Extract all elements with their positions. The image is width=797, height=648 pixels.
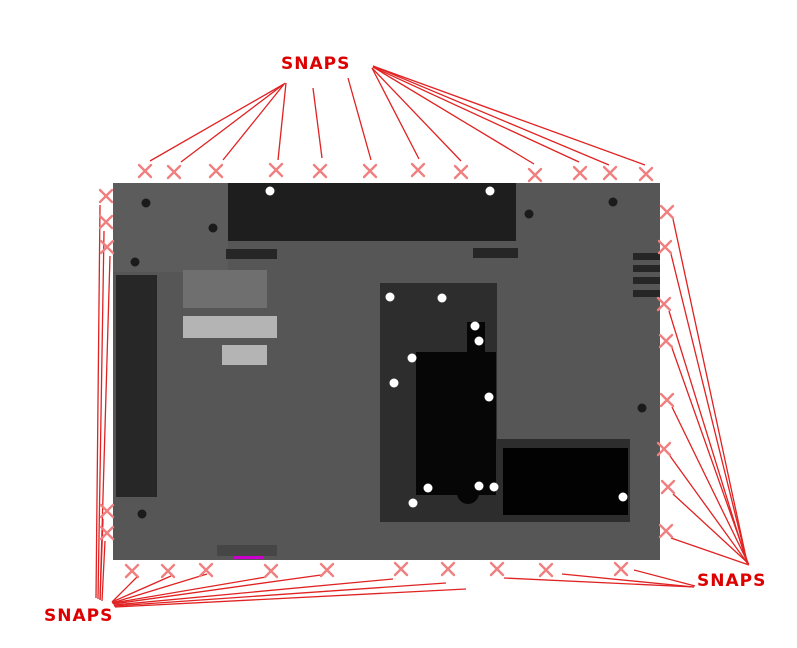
leader-line (673, 494, 749, 564)
keyboard-latch-left (226, 249, 277, 259)
leader-line (504, 578, 694, 587)
snap-x-marker-top (412, 164, 424, 176)
leader-line (671, 538, 749, 565)
leader-line (373, 67, 579, 162)
leader-line (113, 577, 266, 603)
snap-x-marker-bottom (540, 564, 552, 576)
keyboard-latch-right (473, 248, 518, 258)
leader-line (112, 574, 207, 603)
ram-module-2 (183, 316, 277, 338)
snap-x-marker-top (640, 168, 652, 180)
leader-line (115, 589, 466, 607)
snap-x-marker-bottom (265, 565, 277, 577)
snaps-label-top: SNAPS (281, 56, 350, 73)
leader-line (669, 311, 747, 563)
snap-x-marker-left (101, 241, 113, 253)
leader-line (223, 83, 285, 160)
leader-line (634, 570, 695, 586)
snap-x-marker-left (101, 505, 113, 517)
snap-x-marker-bottom (200, 564, 212, 576)
snap-x-marker-top (168, 166, 180, 178)
vent-slat-1 (633, 253, 660, 260)
snap-x-marker-top (529, 169, 541, 181)
leader-line (278, 83, 286, 160)
snap-x-marker-top (314, 165, 326, 177)
leader-line (181, 84, 284, 162)
snap-x-marker-right (661, 394, 673, 406)
leader-line (673, 219, 747, 562)
leader-line (96, 205, 100, 598)
snap-x-marker-top (574, 167, 586, 179)
snap-x-marker-bottom (126, 565, 138, 577)
snap-x-marker-right (660, 525, 672, 537)
snap-x-marker-top (270, 164, 282, 176)
leader-line (671, 254, 747, 562)
leader-line (100, 256, 110, 600)
snap-x-marker-right (661, 206, 673, 218)
snap-x-marker-left (101, 527, 113, 539)
leader-line (114, 583, 446, 606)
battery-bay (116, 275, 157, 497)
laptop-base (113, 183, 660, 560)
leader-line (373, 66, 609, 165)
leader-line (102, 541, 105, 601)
magenta-highlight-strip (234, 556, 263, 559)
leader-line (348, 78, 371, 160)
front-edge-latch (217, 545, 277, 556)
snap-x-marker-top (364, 165, 376, 177)
leader-line (313, 88, 322, 158)
snaps-label-bottom-right: SNAPS (697, 573, 766, 590)
snap-x-marker-top (210, 165, 222, 177)
leader-line (100, 519, 103, 600)
vent-slat-3 (633, 277, 660, 284)
keyboard-area (228, 183, 516, 241)
snap-x-marker-top (139, 165, 151, 177)
drive-bay (503, 448, 628, 515)
leader-line (150, 84, 284, 161)
snap-x-marker-bottom (615, 563, 627, 575)
leader-line (98, 231, 104, 599)
snap-x-marker-bottom (395, 563, 407, 575)
snap-x-marker-left (100, 190, 112, 202)
palmrest-panel (113, 183, 228, 272)
snap-x-marker-top (604, 167, 616, 179)
leader-line (372, 68, 461, 161)
ram-module-1 (183, 270, 267, 308)
leader-line (372, 68, 419, 159)
snap-x-marker-bottom (491, 563, 503, 575)
snap-location-diagram: SNAPS SNAPS SNAPS (0, 0, 797, 648)
vent-slat-2 (633, 265, 660, 272)
leader-line (373, 66, 645, 165)
snap-x-marker-bottom (321, 564, 333, 576)
leader-line (670, 456, 748, 564)
leader-line (114, 579, 393, 605)
leader-line (672, 348, 748, 563)
leader-line (562, 574, 694, 587)
snap-x-marker-top (455, 166, 467, 178)
heatsink-body (416, 352, 496, 495)
snap-x-marker-right (660, 335, 672, 347)
leader-line (112, 577, 137, 602)
snap-x-marker-right (659, 241, 671, 253)
snaps-label-bottom-left: SNAPS (44, 608, 113, 625)
snap-x-marker-bottom (442, 563, 454, 575)
heatsink-column (467, 322, 485, 356)
leader-line (373, 67, 534, 164)
snap-x-marker-right (662, 481, 674, 493)
vent-slat-4 (633, 290, 660, 297)
snap-x-marker-left (100, 216, 112, 228)
ram-module-3 (222, 345, 267, 365)
leader-line (112, 576, 171, 602)
leader-line (113, 575, 321, 604)
snap-x-marker-bottom (162, 565, 174, 577)
leader-line (672, 407, 748, 563)
